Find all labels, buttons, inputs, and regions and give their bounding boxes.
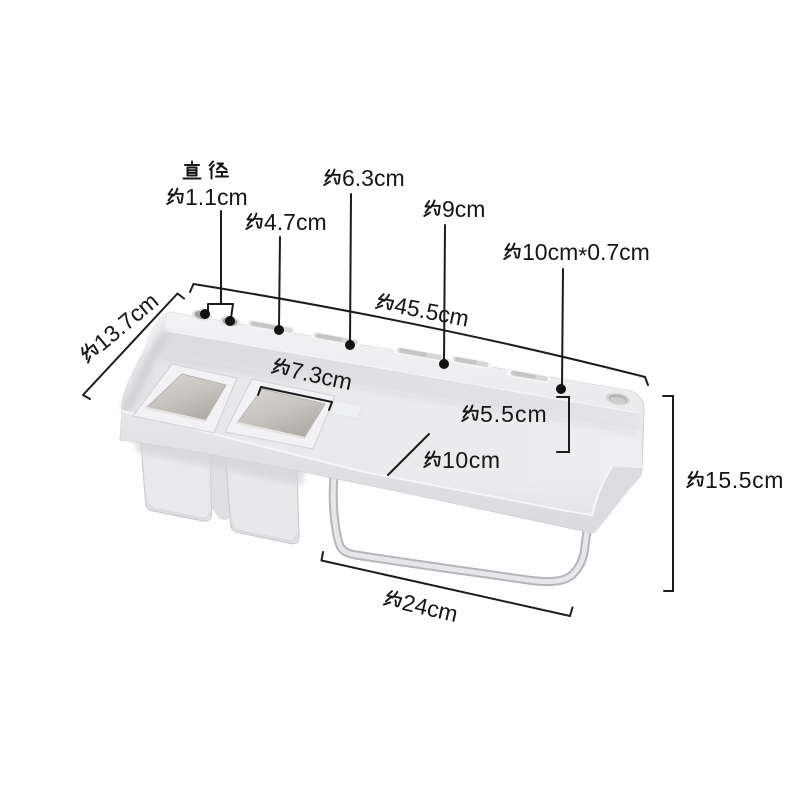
svg-text:10cm: 10cm — [442, 447, 501, 473]
svg-text:15.5cm: 15.5cm — [705, 467, 784, 493]
svg-text:5.5cm: 5.5cm — [480, 401, 548, 427]
svg-text:6.3cm: 6.3cm — [342, 165, 405, 191]
svg-text:1.1cm: 1.1cm — [185, 184, 248, 210]
svg-text:9cm: 9cm — [442, 196, 485, 222]
svg-text:10cm*0.7cm: 10cm*0.7cm — [522, 239, 650, 269]
svg-text:4.7cm: 4.7cm — [264, 209, 327, 235]
